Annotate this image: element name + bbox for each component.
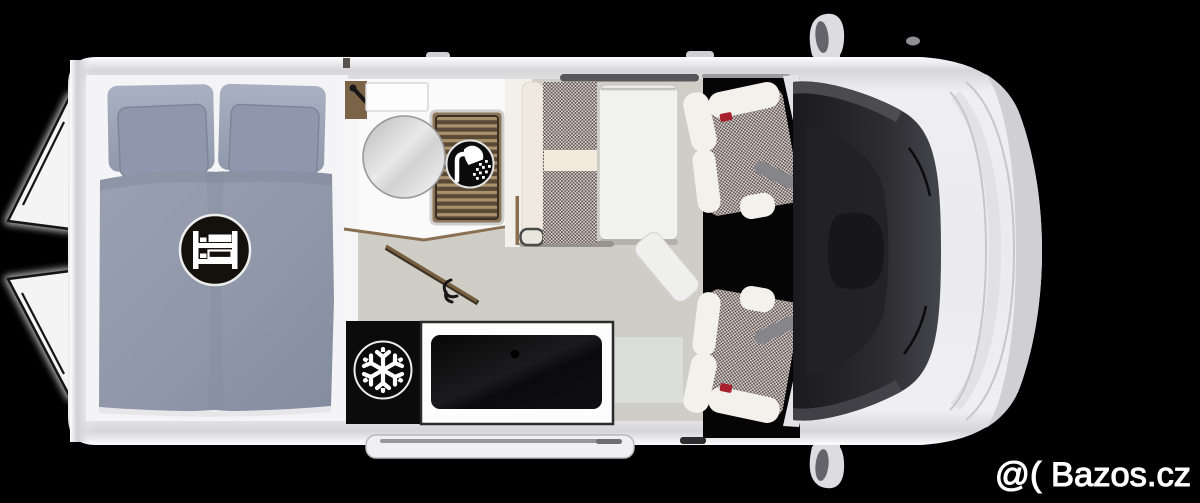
svg-text:@( Bazos.cz: @( Bazos.cz — [995, 456, 1191, 494]
